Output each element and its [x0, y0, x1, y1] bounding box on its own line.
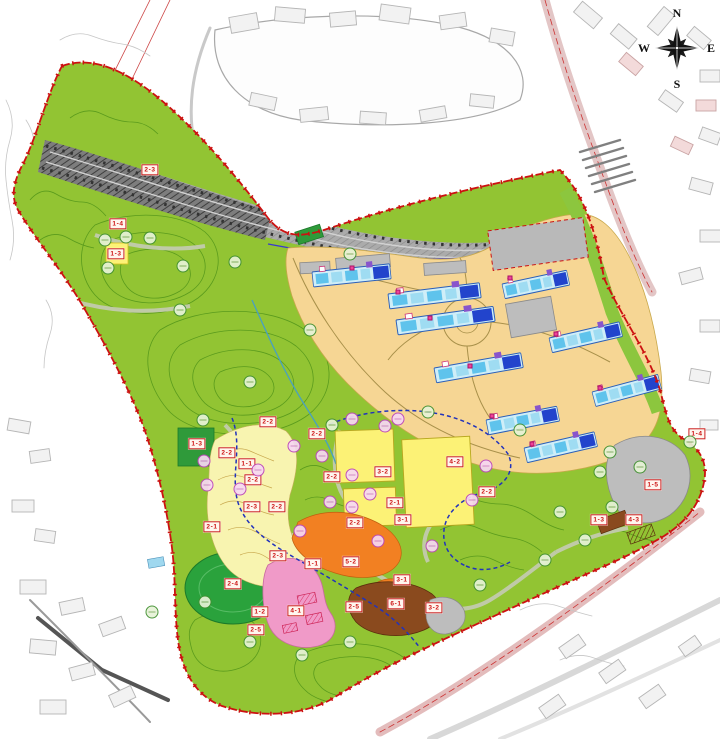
base-map-artwork [0, 0, 720, 739]
small-pond [147, 557, 164, 569]
highlight-parcel [106, 243, 128, 264]
site-plan-map: 2-31-41-32-22-21-32-21-12-22-23-24-22-22… [0, 0, 720, 739]
